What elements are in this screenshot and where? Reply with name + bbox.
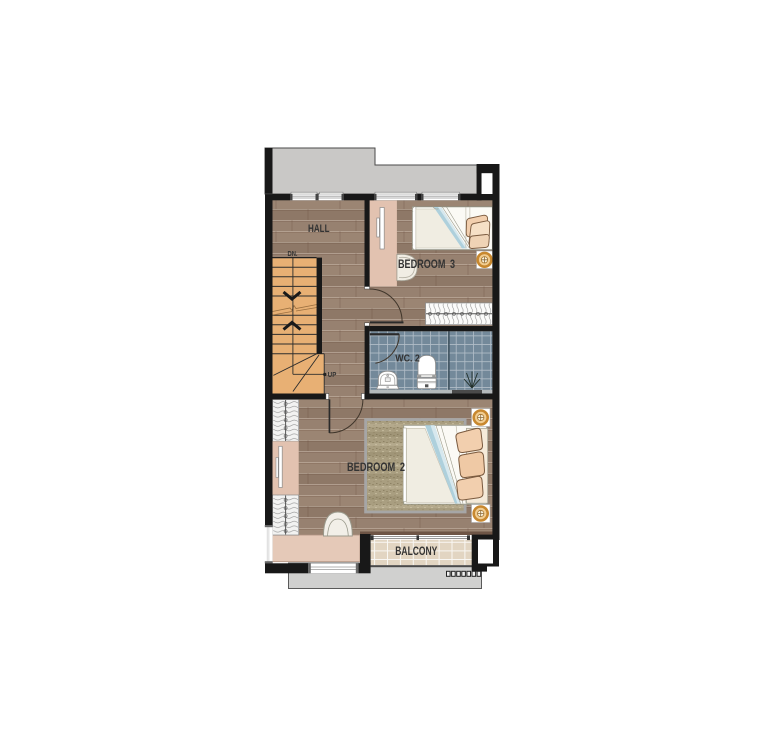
svg-text:DN.: DN. (288, 251, 298, 258)
svg-text:HALL: HALL (308, 223, 330, 235)
svg-text:BEDROOM 2: BEDROOM 2 (347, 460, 405, 474)
svg-text:UP: UP (328, 372, 337, 379)
svg-text:BEDROOM 3: BEDROOM 3 (398, 257, 455, 271)
svg-text:BALCONY: BALCONY (395, 546, 437, 558)
svg-text:WC. 2: WC. 2 (395, 353, 420, 365)
